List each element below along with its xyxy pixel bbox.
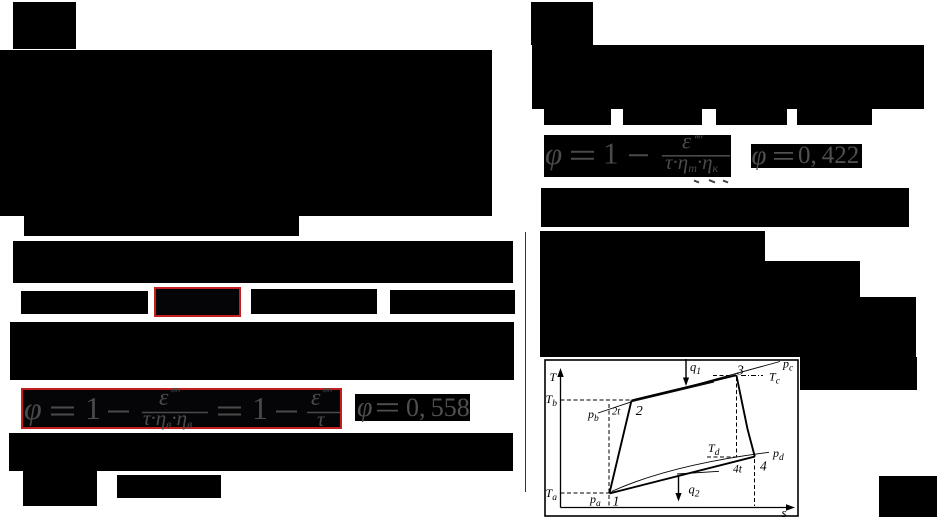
svg-text:0, 422: 0, 422 xyxy=(798,142,859,169)
svg-text:s: s xyxy=(782,505,787,520)
svg-text:1: 1 xyxy=(603,136,619,171)
svg-text:4t: 4t xyxy=(733,464,743,476)
svg-text:1: 1 xyxy=(252,390,268,426)
svg-text:φ: φ xyxy=(357,392,373,423)
svg-text:1: 1 xyxy=(85,390,101,426)
svg-text:φ: φ xyxy=(24,390,42,426)
svg-text:φ: φ xyxy=(545,136,562,171)
svg-text:2t: 2t xyxy=(612,407,621,418)
svg-text:‴′: ‴′ xyxy=(170,386,181,403)
svg-text:1: 1 xyxy=(613,495,620,510)
svg-text:4: 4 xyxy=(760,459,767,474)
svg-text:0, 558: 0, 558 xyxy=(406,393,470,422)
svg-text:‴′: ‴′ xyxy=(322,386,333,403)
svg-text:‴′: ‴′ xyxy=(694,133,704,148)
svg-text:3: 3 xyxy=(736,363,744,378)
svg-text:τ·ηт·ηк: τ·ηт·ηк xyxy=(665,150,719,175)
svg-text:φ: φ xyxy=(752,140,767,170)
svg-text:τ: τ xyxy=(317,407,326,431)
svg-text:2: 2 xyxy=(636,404,643,419)
